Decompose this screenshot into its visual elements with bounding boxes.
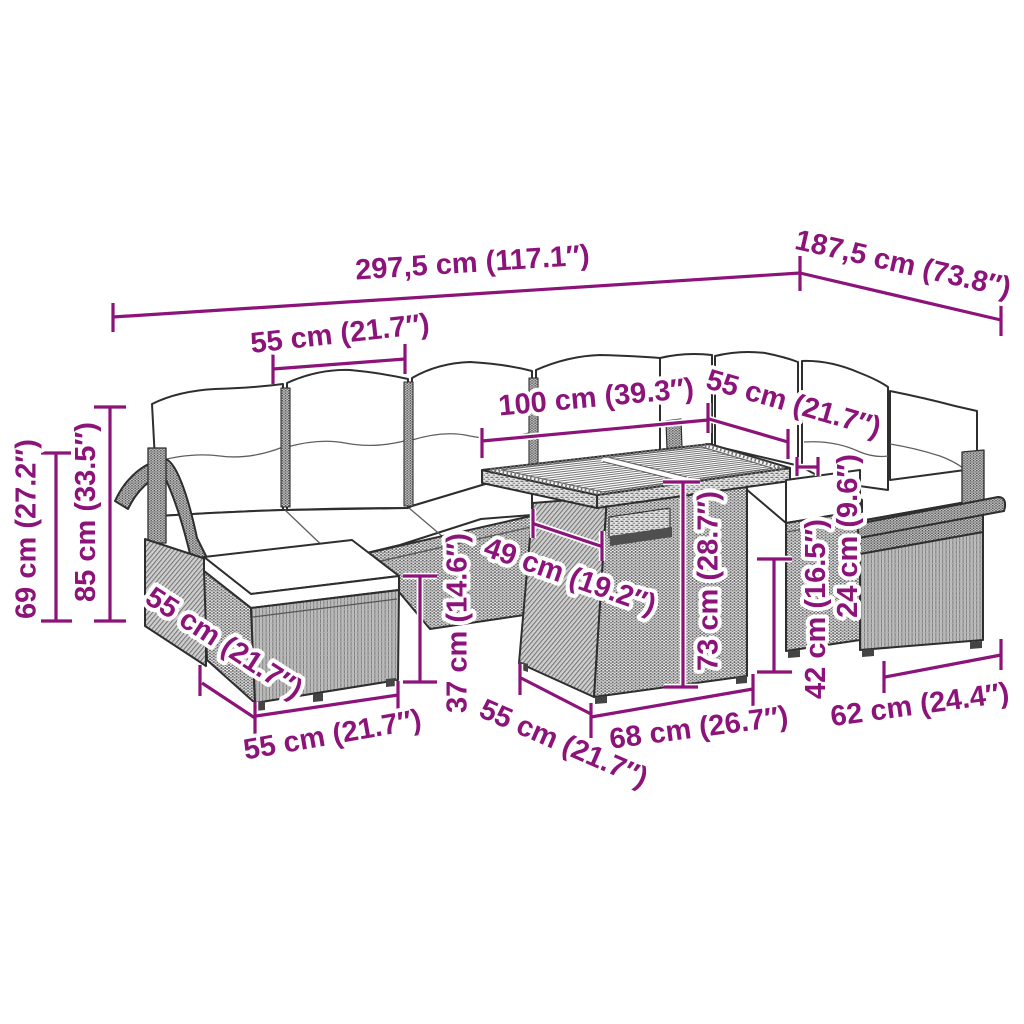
svg-text:42 cm (16.5″): 42 cm (16.5″) xyxy=(800,519,832,699)
svg-text:37 cm (14.6″): 37 cm (14.6″) xyxy=(442,533,474,713)
svg-text:73 cm (28.7″): 73 cm (28.7″) xyxy=(693,491,725,671)
svg-text:85 cm (33.5″): 85 cm (33.5″) xyxy=(70,422,102,602)
svg-text:69 cm (27.2″): 69 cm (27.2″) xyxy=(11,439,43,619)
svg-text:24 cm (9.6″): 24 cm (9.6″) xyxy=(832,454,864,618)
